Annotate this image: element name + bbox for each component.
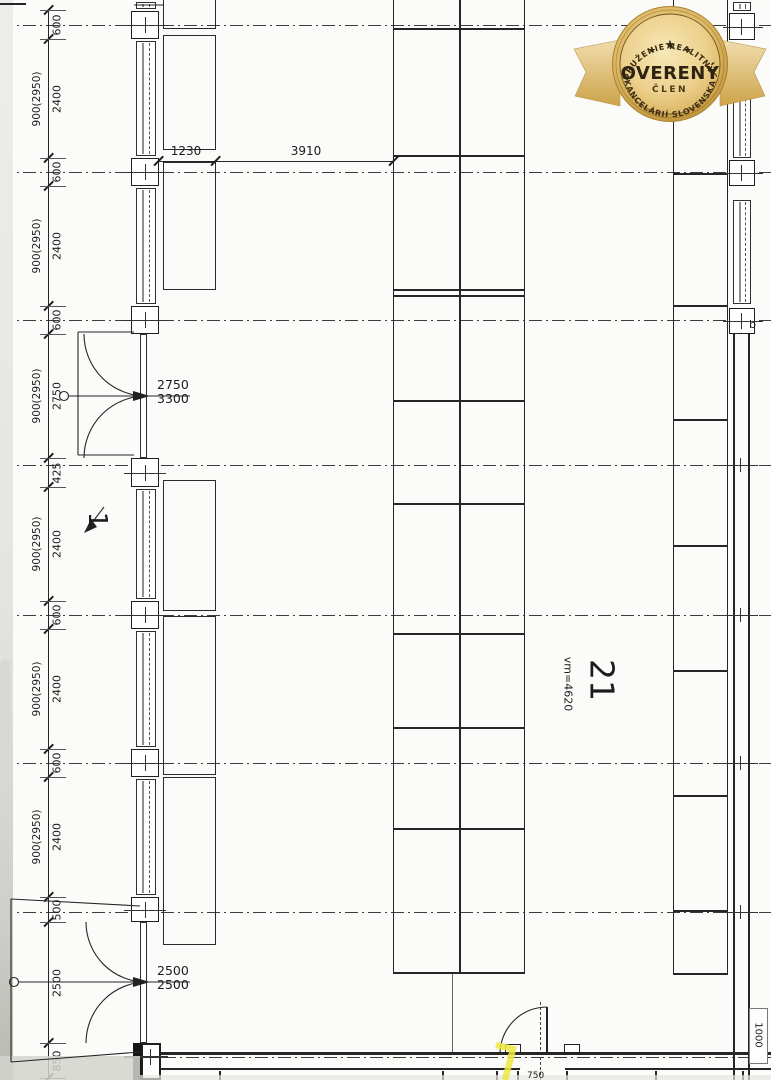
floorplan-scan: 6002400900(2950)6002400900(2950)60027509… xyxy=(0,0,771,1080)
badge-star-center: ★ xyxy=(664,38,676,53)
door-bottom-upper-leaf-arc xyxy=(86,922,146,982)
dim-door-bottom-top: 2500 xyxy=(157,963,189,978)
dim-door-mid-bottom: 3300 xyxy=(157,391,189,406)
door-mid-arrow-circle xyxy=(60,392,69,401)
door-mid-upper-leaf-arc xyxy=(84,334,146,396)
door-bottom-arrowhead xyxy=(133,977,150,987)
room21-area-label: vm=4620 xyxy=(562,657,575,711)
door-bottom-landing xyxy=(11,899,140,1062)
door-bottom-lower-leaf-arc xyxy=(86,982,146,1043)
dim-right-1000: 1000 xyxy=(753,1022,764,1047)
door-mid-arrowhead xyxy=(133,391,150,401)
overeny-clen-badge: ZDRUŽENIE REALITNÝCH KANCELÁRIÍ SLOVENSK… xyxy=(556,0,771,134)
badge-star-right: ★ xyxy=(684,46,692,56)
room1-label: 1 xyxy=(82,512,112,529)
dim-door-bottom-bottom: 2500 xyxy=(157,977,189,992)
wall-mark-b: b xyxy=(749,318,756,331)
badge-subtitle: ČLEN xyxy=(652,83,688,95)
yellow-highlighter-mark xyxy=(496,1045,513,1080)
dim-bottom-partial: 750 xyxy=(527,1071,544,1080)
badge-title: OVERENÝ xyxy=(621,62,720,84)
dim-rack-depth: 1230 xyxy=(171,144,202,158)
room21-label: 21 xyxy=(583,659,622,701)
dim-door-mid-top: 2750 xyxy=(157,377,189,392)
badge-star-left: ★ xyxy=(648,46,656,56)
dim-aisle: 3910 xyxy=(291,144,322,158)
door-mid-lower-leaf-arc xyxy=(84,396,146,458)
door-and-annotation-overlay xyxy=(0,0,771,1080)
